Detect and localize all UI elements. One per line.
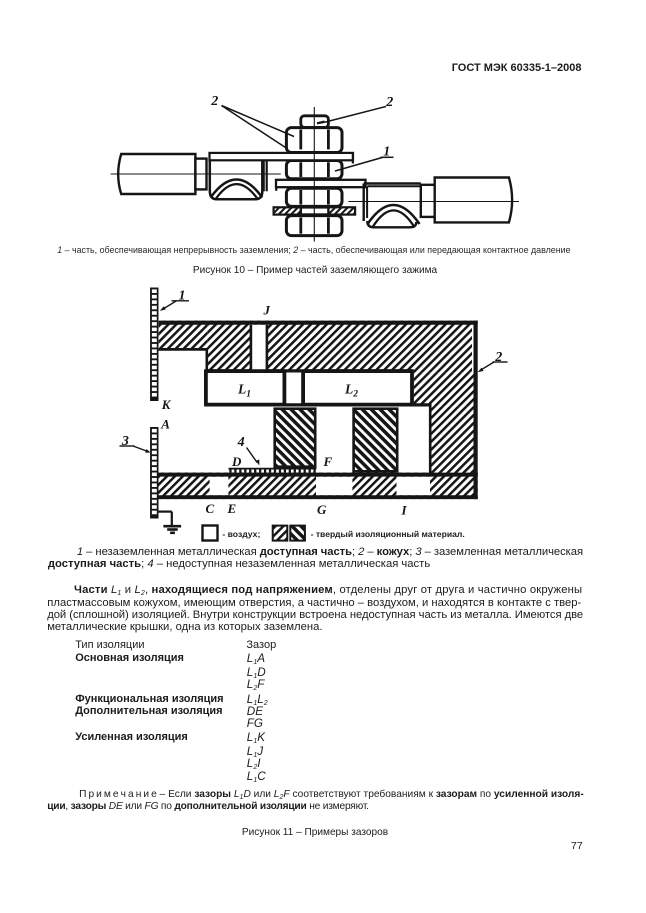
svg-text:J: J — [263, 303, 271, 318]
svg-text:3: 3 — [121, 434, 129, 449]
svg-text:F: F — [323, 454, 333, 469]
svg-text:2: 2 — [494, 350, 502, 365]
svg-text:2: 2 — [385, 95, 393, 110]
svg-text:1: 1 — [179, 289, 186, 304]
svg-text:1: 1 — [383, 145, 390, 160]
svg-text:C: C — [206, 501, 215, 516]
svg-text:I: I — [401, 503, 408, 518]
svg-text:G: G — [317, 502, 327, 517]
svg-text:E: E — [227, 501, 237, 516]
svg-text:4: 4 — [237, 435, 245, 450]
svg-text:K: K — [161, 397, 172, 412]
svg-text:A: A — [160, 417, 170, 432]
svg-text:2: 2 — [210, 94, 218, 109]
svg-text:D: D — [231, 454, 242, 469]
